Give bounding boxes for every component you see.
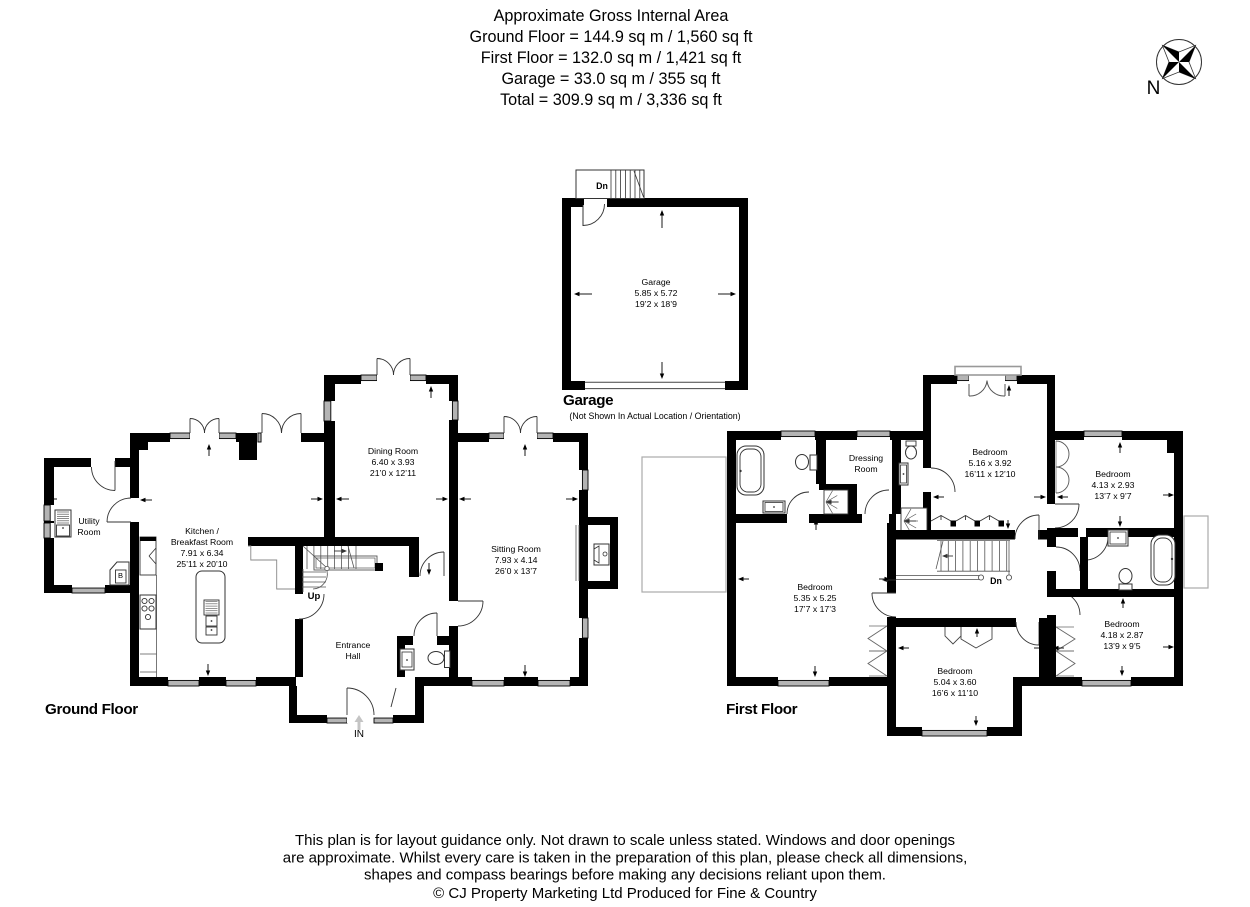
svg-text:19’2 x 18’9: 19’2 x 18’9	[635, 299, 677, 309]
svg-text:5.35 x 5.25: 5.35 x 5.25	[794, 593, 837, 603]
svg-text:Kitchen /: Kitchen /	[185, 526, 219, 536]
svg-text:21’0 x 12’11: 21’0 x 12’11	[370, 468, 416, 478]
svg-text:Bedroom: Bedroom	[797, 582, 832, 592]
svg-text:Approximate Gross Internal Are: Approximate Gross Internal Area	[494, 7, 729, 25]
svg-text:16’6 x 11’10: 16’6 x 11’10	[932, 688, 978, 698]
svg-text:Room: Room	[854, 464, 877, 474]
svg-text:Sitting Room: Sitting Room	[491, 544, 541, 554]
svg-text:Garage: Garage	[642, 277, 671, 287]
svg-text:shapes and compass bearings be: shapes and compass bearings before makin…	[364, 867, 886, 884]
svg-text:Dn: Dn	[990, 576, 1002, 586]
svg-text:4.13 x 2.93: 4.13 x 2.93	[1092, 480, 1135, 490]
svg-text:Dining Room: Dining Room	[368, 446, 418, 456]
svg-text:6.40 x 3.93: 6.40 x 3.93	[372, 457, 415, 467]
svg-text:5.16 x 3.92: 5.16 x 3.92	[969, 458, 1012, 468]
svg-text:Room: Room	[77, 527, 100, 537]
svg-text:7.91 x 6.34: 7.91 x 6.34	[181, 548, 224, 558]
svg-text:25’11 x 20’10: 25’11 x 20’10	[176, 559, 227, 569]
svg-text:4.18 x 2.87: 4.18 x 2.87	[1101, 630, 1144, 640]
svg-text:Ground Floor: Ground Floor	[45, 701, 138, 718]
svg-text:Bedroom: Bedroom	[937, 666, 972, 676]
svg-text:are approximate. Whilst every: are approximate. Whilst every care is ta…	[283, 849, 968, 866]
svg-text:Total = 309.9 sq m / 3,336 sq: Total = 309.9 sq m / 3,336 sq ft	[500, 91, 722, 109]
svg-text:(Not Shown In Actual Location: (Not Shown In Actual Location / Orientat…	[569, 411, 740, 421]
svg-text:13’9 x 9’5: 13’9 x 9’5	[1103, 641, 1140, 651]
svg-text:Utility: Utility	[78, 516, 100, 526]
svg-text:This plan is for layout guidan: This plan is for layout guidance only. N…	[295, 832, 955, 849]
svg-text:IN: IN	[354, 729, 364, 740]
svg-text:17’7 x 17’3: 17’7 x 17’3	[794, 604, 836, 614]
svg-text:7.93 x 4.14: 7.93 x 4.14	[495, 555, 538, 565]
svg-text:B: B	[118, 571, 123, 580]
svg-text:16’11 x 12’10: 16’11 x 12’10	[964, 469, 1015, 479]
svg-text:13’7 x 9’7: 13’7 x 9’7	[1094, 491, 1131, 501]
svg-text:Up: Up	[308, 591, 321, 602]
svg-text:5.04 x 3.60: 5.04 x 3.60	[934, 677, 977, 687]
svg-text:26’0 x 13’7: 26’0 x 13’7	[495, 566, 537, 576]
svg-text:Bedroom: Bedroom	[972, 447, 1007, 457]
svg-text:Ground Floor = 144.9 sq m / 1,: Ground Floor = 144.9 sq m / 1,560 sq ft	[470, 28, 753, 46]
svg-text:Breakfast Room: Breakfast Room	[171, 537, 233, 547]
svg-text:Bedroom: Bedroom	[1104, 619, 1139, 629]
svg-text:Hall: Hall	[346, 651, 361, 661]
svg-text:First Floor: First Floor	[726, 701, 798, 718]
svg-text:Dressing: Dressing	[849, 453, 883, 463]
svg-text:Entrance: Entrance	[336, 640, 371, 650]
svg-text:Garage: Garage	[563, 392, 613, 409]
svg-text:© CJ Property Marketing Ltd Pr: © CJ Property Marketing Ltd Produced for…	[433, 885, 817, 902]
svg-text:Garage = 33.0 sq m / 355 sq ft: Garage = 33.0 sq m / 355 sq ft	[501, 70, 721, 88]
svg-text:N: N	[1147, 78, 1161, 99]
svg-text:First Floor = 132.0 sq m / 1,4: First Floor = 132.0 sq m / 1,421 sq ft	[481, 49, 742, 67]
svg-text:Dn: Dn	[596, 181, 608, 191]
svg-text:Bedroom: Bedroom	[1095, 469, 1130, 479]
svg-text:5.85 x 5.72: 5.85 x 5.72	[635, 288, 678, 298]
